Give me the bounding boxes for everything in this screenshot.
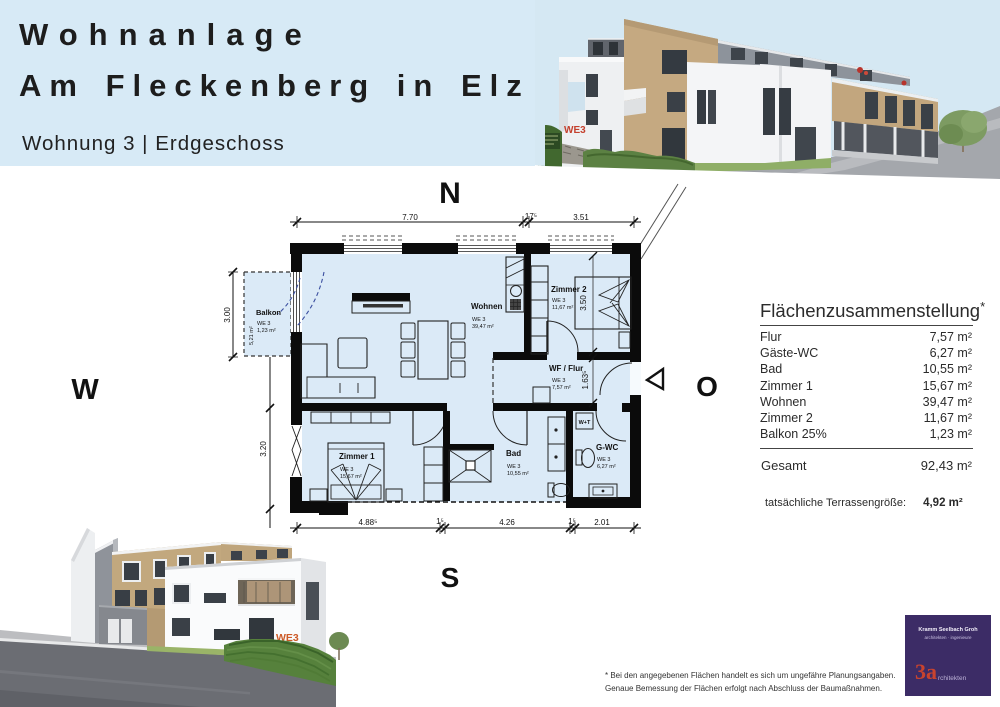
svg-text:G-WC: G-WC (596, 443, 618, 452)
svg-text:4.26: 4.26 (499, 518, 515, 527)
svg-text:11,67 m²: 11,67 m² (552, 305, 573, 311)
svg-text:10,55 m²: 10,55 m² (507, 471, 529, 477)
svg-text:3.50: 3.50 (579, 295, 588, 311)
svg-text:3.00: 3.00 (223, 307, 232, 323)
svg-text:7.70: 7.70 (402, 213, 418, 222)
svg-text:2.01: 2.01 (594, 518, 610, 527)
svg-text:WE 3: WE 3 (472, 317, 485, 323)
svg-text:W+T: W+T (579, 420, 591, 426)
svg-text:5,21 m²: 5,21 m² (249, 326, 255, 345)
svg-text:1⁵: 1⁵ (568, 517, 576, 526)
svg-text:WE 3: WE 3 (552, 298, 565, 304)
svg-text:17⁵: 17⁵ (525, 212, 537, 221)
svg-text:WE 3: WE 3 (552, 378, 565, 384)
svg-text:WE 3: WE 3 (340, 467, 353, 473)
svg-text:WE 3: WE 3 (507, 464, 520, 470)
svg-text:Zimmer 2: Zimmer 2 (551, 285, 587, 294)
svg-text:1,23 m²: 1,23 m² (257, 328, 276, 334)
svg-text:4.88⁵: 4.88⁵ (359, 518, 378, 527)
svg-text:39,47 m²: 39,47 m² (472, 324, 494, 330)
svg-text:W: W (71, 374, 99, 406)
svg-text:O: O (696, 371, 718, 402)
svg-text:1⁵: 1⁵ (436, 517, 444, 526)
svg-text:WF / Flur: WF / Flur (549, 364, 583, 373)
svg-text:N: N (439, 177, 461, 210)
svg-text:3.51: 3.51 (573, 213, 589, 222)
svg-text:WE 3: WE 3 (597, 457, 610, 463)
svg-text:6,27 m²: 6,27 m² (597, 464, 616, 470)
svg-text:15,67 m²: 15,67 m² (340, 474, 362, 480)
svg-text:7,57 m²: 7,57 m² (552, 385, 571, 391)
svg-text:Bad: Bad (506, 449, 521, 458)
svg-text:Zimmer 1: Zimmer 1 (339, 452, 375, 461)
svg-text:3.20: 3.20 (259, 441, 268, 457)
svg-text:WE 3: WE 3 (257, 321, 270, 327)
svg-text:Balkon: Balkon (256, 308, 281, 317)
svg-text:1.63⁵: 1.63⁵ (581, 371, 590, 390)
svg-text:Wohnen: Wohnen (471, 302, 503, 311)
svg-text:S: S (441, 562, 460, 593)
